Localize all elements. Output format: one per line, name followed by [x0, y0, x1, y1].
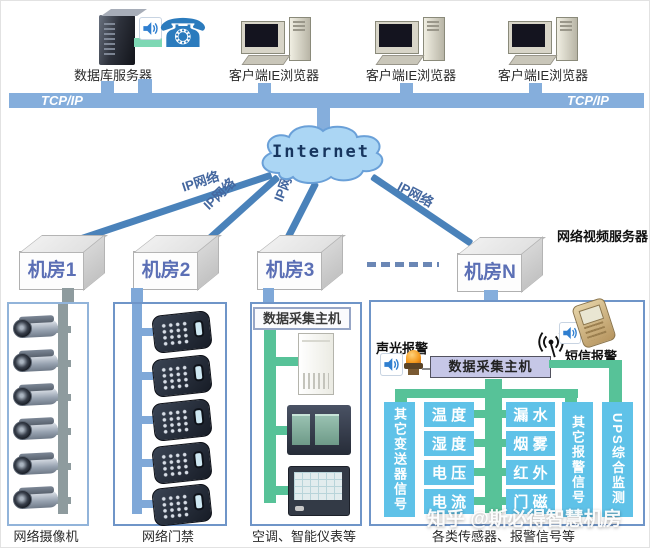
- tower-icon: [556, 17, 578, 61]
- keypad-icon: [151, 441, 213, 485]
- tower-icon: [289, 17, 311, 61]
- camera-column-label: 网络摄像机: [1, 526, 91, 545]
- connector: [473, 468, 485, 476]
- room-label-3: 机房3: [266, 260, 315, 281]
- keypad-icon: [151, 310, 213, 354]
- watermark: 知乎 @斯必得智慧机房: [427, 504, 622, 531]
- room-label-1: 机房1: [28, 260, 77, 281]
- connector: [141, 416, 153, 424]
- nvr-label: 网络视频服务器: [557, 226, 648, 245]
- connector: [141, 372, 153, 380]
- room-label-2: 机房2: [142, 260, 191, 281]
- connector: [473, 410, 485, 418]
- keypad-icon: [151, 483, 213, 527]
- keypad-icon: [151, 354, 213, 398]
- room-box-2: 机房2: [133, 251, 199, 290]
- alarm-beacon-icon: [404, 350, 423, 376]
- left-signal-label: 其它变送器信号: [390, 407, 409, 512]
- collector-bus: [264, 330, 276, 503]
- camera-bus: [58, 304, 68, 514]
- ups-box: UPS综合监测: [602, 402, 633, 517]
- sensor-box-voltage: 电 压: [424, 460, 474, 485]
- air-conditioner-icon: [298, 333, 334, 395]
- connector: [141, 500, 153, 508]
- room-label-n: 机房N: [464, 262, 516, 283]
- client-pc-icon: [375, 17, 445, 65]
- screen: [512, 24, 545, 47]
- keypad-icon: [151, 398, 213, 442]
- connector: [473, 439, 485, 447]
- plc-icon: [287, 405, 351, 455]
- connector: [141, 328, 153, 336]
- access-column-label: 网络门禁: [113, 526, 223, 545]
- smart-meter-icon: [288, 466, 350, 516]
- sensor-bus-horizontal: [395, 389, 578, 398]
- tcpip-label-left: TCP/IP: [41, 93, 83, 108]
- client-label-1: 客户端IE浏览器: [214, 65, 334, 84]
- keyboard-icon: [241, 55, 290, 65]
- camera-icon: [13, 451, 59, 481]
- keyboard-icon: [508, 55, 557, 65]
- ups-label: UPS综合监测: [608, 413, 627, 506]
- sensor-box-infrared: 红 外: [506, 460, 555, 485]
- sensor-box-temperature: 温 度: [424, 402, 474, 427]
- sensor-box-humidity: 湿 度: [424, 431, 474, 456]
- tower-icon: [423, 17, 445, 61]
- room-box-1: 机房1: [19, 251, 85, 290]
- connector: [141, 459, 153, 467]
- client-label-2: 客户端IE浏览器: [351, 65, 471, 84]
- telephone-icon: ☎: [158, 14, 208, 54]
- screen: [245, 24, 278, 47]
- network-diagram: ☎ 数据库服务器 客户端IE浏览器 客户端IE浏览器 客户端IE浏览器 TCP/…: [0, 0, 650, 548]
- dashed-link: [367, 262, 439, 267]
- tcpip-label-right: TCP/IP: [567, 93, 609, 108]
- tcpip-bus: [9, 93, 644, 108]
- connector: [276, 357, 298, 366]
- room-box-n: 机房N: [457, 253, 523, 292]
- client-label-3: 客户端IE浏览器: [483, 65, 603, 84]
- sensor-box-leak: 漏 水: [506, 402, 555, 427]
- left-signal-box: 其它变送器信号: [384, 402, 415, 517]
- collector-banner: 数据采集主机: [253, 307, 351, 330]
- camera-icon: [13, 416, 59, 446]
- client-pc-icon: [508, 17, 578, 65]
- camera-icon: [13, 314, 59, 344]
- camera-icon: [13, 382, 59, 412]
- screen: [379, 24, 412, 47]
- right-signal-box: 其它报警信号: [562, 402, 593, 517]
- collector-column-label: 空调、智能仪表等: [241, 526, 367, 545]
- collector-host-banner: 数据采集主机: [430, 356, 551, 378]
- speaker-icon: [380, 353, 403, 376]
- ups-branch-vertical: [609, 360, 622, 404]
- internet-label: Internet: [269, 142, 373, 162]
- database-server-icon: [99, 15, 135, 65]
- right-signal-label: 其它报警信号: [568, 415, 587, 505]
- room-box-3: 机房3: [257, 251, 323, 290]
- camera-icon: [13, 485, 59, 515]
- keyboard-icon: [375, 55, 424, 65]
- sensor-box-smoke: 烟 雾: [506, 431, 555, 456]
- sensor-bus-center: [485, 379, 502, 513]
- camera-icon: [13, 348, 59, 378]
- client-pc-icon: [241, 17, 311, 65]
